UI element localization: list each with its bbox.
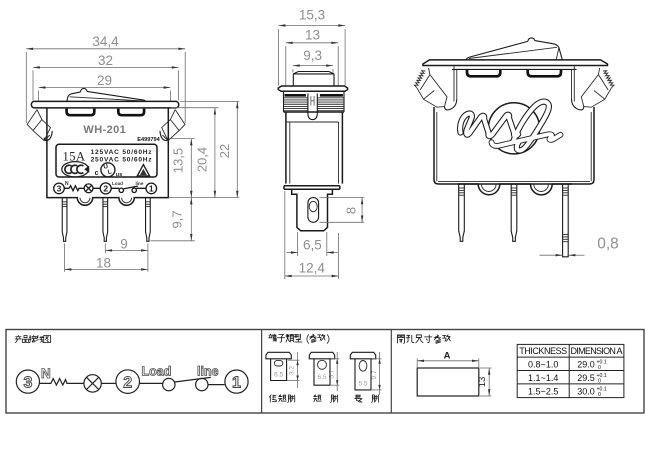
svg-text:1.5~2.5: 1.5~2.5	[528, 386, 558, 396]
svg-text:13,5: 13,5	[170, 148, 185, 173]
svg-text:12,4: 12,4	[299, 261, 326, 276]
svg-text:DIMENSION A: DIMENSION A	[571, 346, 623, 356]
svg-text:1.1~1.4: 1.1~1.4	[528, 373, 558, 383]
svg-text:2: 2	[123, 374, 132, 391]
svg-text:0: 0	[598, 392, 601, 398]
svg-text:WH-201: WH-201	[83, 124, 126, 136]
svg-text:line: line	[197, 365, 219, 379]
svg-text:9,3: 9,3	[303, 48, 322, 63]
svg-text:34,4: 34,4	[92, 34, 119, 49]
svg-text:line: line	[136, 181, 144, 186]
svg-text:13: 13	[305, 27, 320, 42]
svg-text:us: us	[116, 172, 123, 178]
svg-text:5.7: 5.7	[329, 369, 336, 378]
svg-text:0: 0	[598, 378, 601, 384]
svg-text:13: 13	[477, 377, 488, 388]
svg-text:1: 1	[149, 183, 154, 193]
svg-text:29.5: 29.5	[577, 373, 595, 383]
svg-text:9: 9	[120, 237, 128, 252]
svg-text:0,8: 0,8	[597, 236, 619, 253]
svg-text:18: 18	[96, 256, 111, 271]
svg-text:29.0: 29.0	[577, 360, 595, 370]
svg-text:E499794: E499794	[137, 137, 160, 143]
svg-text:6.5: 6.5	[274, 372, 283, 379]
svg-text:30.0: 30.0	[577, 386, 595, 396]
svg-text:3: 3	[23, 374, 32, 391]
svg-text:250VAC 50/60Hz: 250VAC 50/60Hz	[91, 157, 153, 164]
svg-text:Load: Load	[142, 365, 172, 379]
svg-text:29: 29	[97, 73, 112, 88]
svg-text:22: 22	[217, 144, 232, 158]
svg-text:3.2: 3.2	[289, 366, 296, 375]
svg-text:8: 8	[343, 207, 358, 214]
svg-text:125VAC 50/60Hz: 125VAC 50/60Hz	[91, 149, 153, 156]
svg-text:N: N	[65, 181, 69, 187]
svg-text:6,5: 6,5	[303, 237, 322, 252]
svg-text:3: 3	[57, 183, 62, 193]
svg-text:0: 0	[598, 365, 601, 371]
svg-text:THICKNESS: THICKNESS	[519, 346, 567, 356]
svg-text:5.5: 5.5	[358, 381, 367, 388]
svg-text:2: 2	[103, 183, 108, 193]
svg-text:9.7: 9.7	[371, 370, 378, 379]
svg-text:9,7: 9,7	[169, 210, 184, 228]
svg-text:1: 1	[232, 374, 241, 391]
svg-text:A: A	[444, 351, 451, 362]
svg-text:Load: Load	[112, 181, 123, 186]
svg-text:15,3: 15,3	[299, 8, 325, 23]
svg-text:20,4: 20,4	[195, 147, 210, 172]
svg-text:N: N	[41, 366, 51, 381]
svg-text:6.5: 6.5	[317, 374, 326, 381]
svg-text:32: 32	[98, 53, 113, 68]
svg-text:c: c	[95, 170, 99, 177]
svg-text:0.8~1.0: 0.8~1.0	[528, 360, 558, 370]
